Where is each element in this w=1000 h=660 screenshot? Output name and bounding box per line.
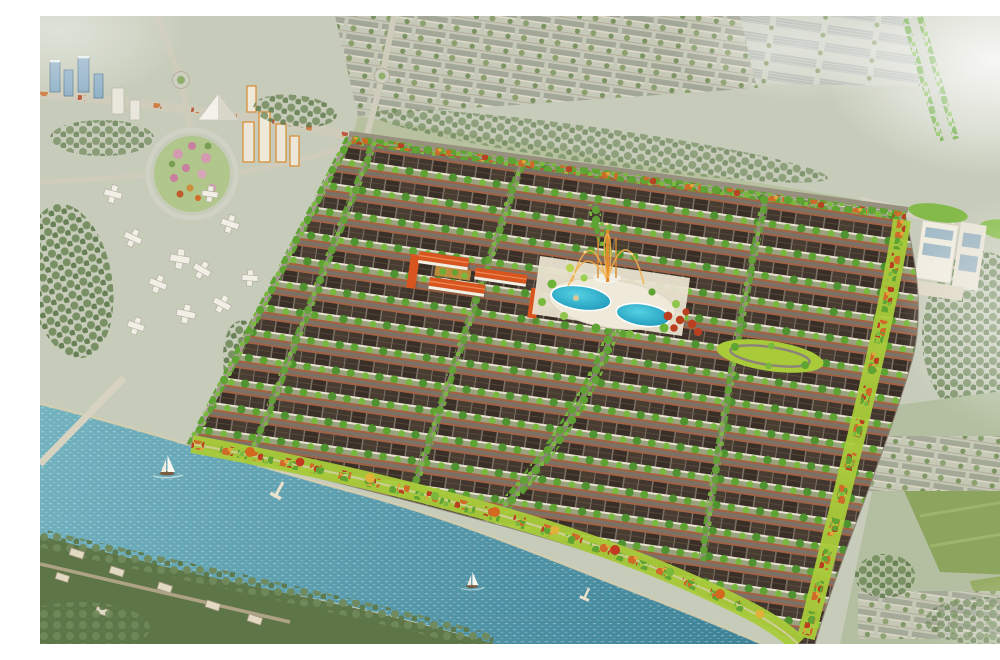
roundabout-green bbox=[177, 76, 185, 84]
pool-island bbox=[573, 295, 579, 301]
master-plan-canvas bbox=[40, 16, 1000, 644]
aerial-render-image: Aerial perspective rendering of a rivers… bbox=[40, 16, 1000, 644]
roundabout-2-green bbox=[379, 73, 386, 80]
west-tree-cluster-3 bbox=[50, 120, 154, 156]
